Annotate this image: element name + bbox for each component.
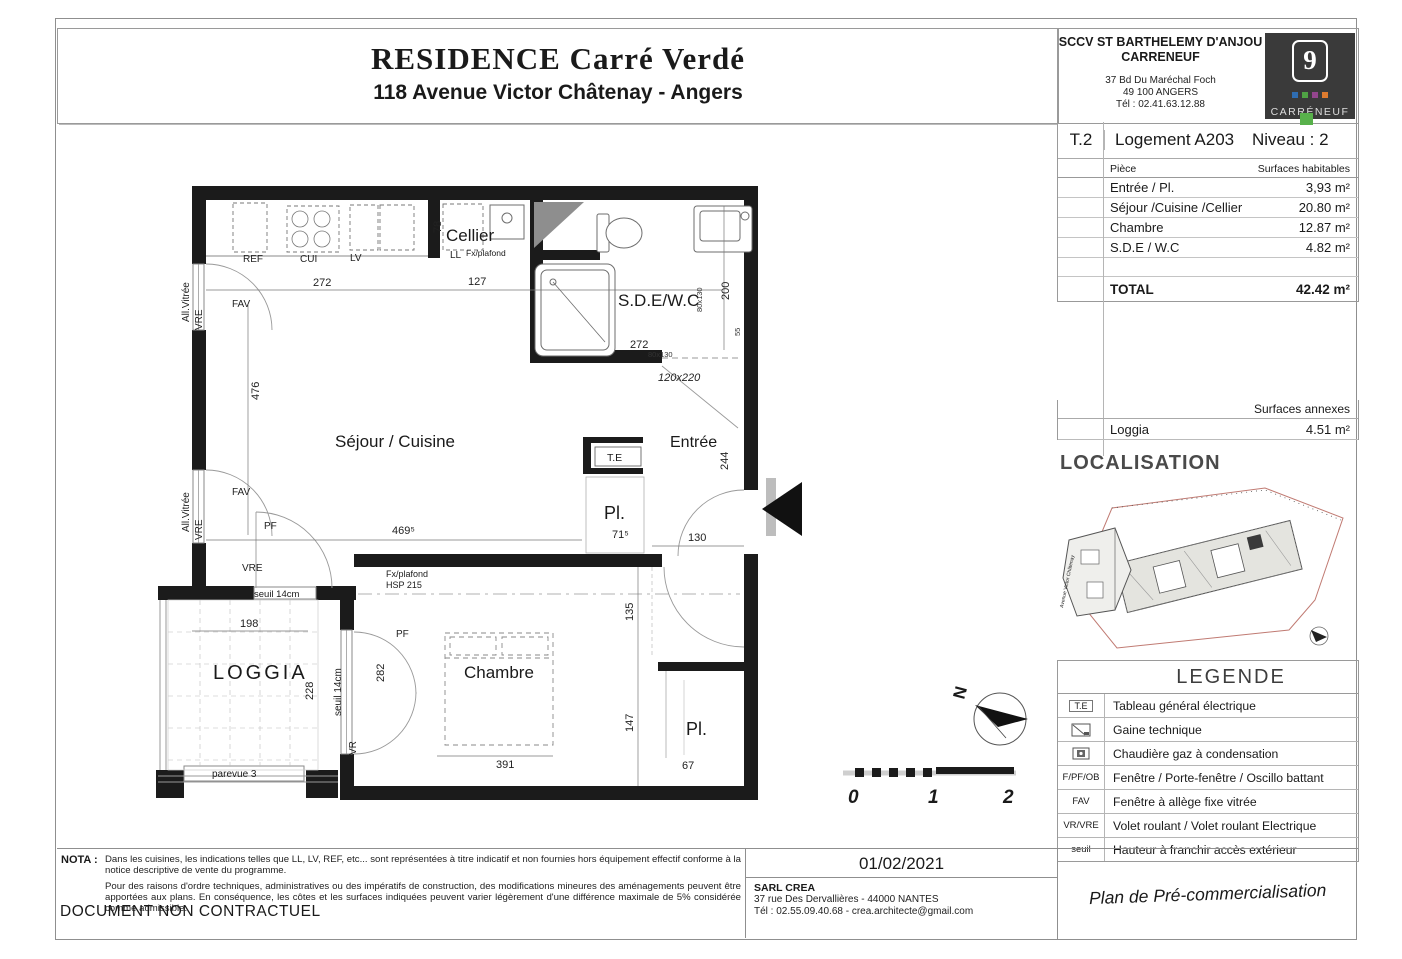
label-fav-2: FAV: [232, 487, 250, 498]
dim-244: 244: [719, 452, 731, 470]
room-area: 3,93 m²: [1306, 180, 1358, 195]
room-label-sejour: Séjour / Cuisine: [335, 432, 455, 451]
label-fav-1: FAV: [232, 299, 250, 310]
plan-sheet: RESIDENCE Carré Verdé 118 Avenue Victor …: [0, 0, 1402, 959]
room-label-pl-chambre: Pl.: [686, 719, 707, 739]
legend-label: Fenêtre à allège fixe vitrée: [1105, 795, 1257, 809]
dim-71: 71⁵: [612, 529, 629, 541]
legend-label: Fenêtre / Porte-fenêtre / Oscillo battan…: [1105, 771, 1324, 785]
scale-bar: 0 1 2: [843, 767, 1016, 808]
entrance-arrow-icon: [762, 478, 802, 536]
dim-147: 147: [624, 714, 636, 732]
developer-name-line2: CARRENEUF: [1058, 50, 1263, 65]
floorplan-drawing: T.E Séjour / Cuisine Cellier S.D.E/W.C E…: [140, 168, 1052, 820]
label-cui: CUI: [300, 254, 317, 265]
annex-area: 4.51 m²: [1306, 422, 1358, 437]
scale-1: 1: [928, 787, 939, 808]
te-symbol: T.E: [1069, 700, 1092, 712]
room-name: S.D.E / W.C: [1058, 240, 1306, 255]
room-area: 12.87 m²: [1299, 220, 1358, 235]
fav-symbol: FAV: [1058, 790, 1105, 813]
gaine-icon: [1058, 718, 1105, 741]
dim-272-sde: 272: [630, 339, 648, 351]
label-pf-2: PF: [396, 629, 409, 640]
architect-address: 37 rue Des Dervallières - 44000 NANTES: [754, 894, 1057, 906]
scale-0: 0: [848, 787, 859, 808]
legend-row: VR/VRE Volet roulant / Volet roulant Ele…: [1058, 814, 1358, 838]
architect-block: SARL CREA 37 rue Des Dervallières - 4400…: [745, 878, 1057, 938]
legend-label: Chaudière gaz à condensation: [1105, 747, 1278, 761]
dim-55: 55: [733, 328, 742, 336]
fpfob-symbol: F/PF/OB: [1058, 766, 1105, 789]
logo-dots-icon: [1265, 85, 1355, 103]
col-surfaces: Surfaces habitables: [1258, 163, 1358, 175]
label-lv: LV: [350, 253, 362, 264]
label-pf-1: PF: [264, 521, 277, 532]
te-label: T.E: [607, 452, 622, 464]
label-hsp215: HSP 215: [386, 580, 422, 590]
legend-row: FAV Fenêtre à allège fixe vitrée: [1058, 790, 1358, 814]
localisation-map: Avenue Victor Châtenay: [1057, 478, 1355, 658]
dim-391: 391: [496, 759, 514, 771]
architect-contact: Tél : 02.55.09.40.68 - crea.architecte@g…: [754, 906, 1057, 918]
legend-heading: LEGENDE: [1058, 661, 1358, 694]
developer-name-line1: SCCV ST BARTHELEMY D'ANJOU: [1058, 35, 1263, 50]
unit-name: Logement A203: [1104, 130, 1252, 150]
table-row: Loggia 4.51 m²: [1058, 419, 1358, 440]
unit-type: T.2: [1058, 130, 1104, 150]
room-name: Chambre: [1058, 220, 1299, 235]
annexes-header: Surfaces annexes: [1058, 400, 1358, 419]
hob-burners: [292, 211, 330, 247]
col-piece: Pièce: [1058, 163, 1258, 175]
label-parevue: parevue 3: [212, 769, 257, 780]
room-label-pl-entree: Pl.: [604, 503, 625, 523]
legend-row: T.E Tableau général électrique: [1058, 694, 1358, 718]
non-contractual-note: DOCUMENT NON CONTRACTUEL: [60, 903, 321, 921]
label-fx-plafond-chambre: Fx/plafond: [386, 569, 428, 579]
legend-label: Gaine technique: [1105, 723, 1202, 737]
label-vr: VR: [348, 741, 359, 755]
annex-room: Loggia: [1058, 422, 1306, 437]
dim-200: 200: [720, 282, 732, 300]
developer-phone: Tél : 02.41.63.12.88: [1058, 99, 1263, 111]
dim-127: 127: [468, 276, 486, 288]
dim-120x220: 120x220: [658, 372, 701, 384]
chaudiere-icon: [1058, 742, 1105, 765]
label-vre-3: VRE: [242, 563, 263, 574]
date-box: 01/02/2021: [745, 848, 1057, 878]
dim-228: 228: [304, 682, 316, 700]
label-fx-plafond-cellier: Fx/plafond: [466, 248, 506, 258]
localisation-heading: LOCALISATION: [1060, 452, 1221, 475]
label-seuil-horizontal: seuil 14cm: [254, 589, 299, 600]
dim-282: 282: [375, 664, 387, 682]
annexes-table: Surfaces annexes Loggia 4.51 m²: [1057, 400, 1359, 440]
total-label: TOTAL: [1058, 282, 1296, 297]
developer-block: SCCV ST BARTHELEMY D'ANJOU CARRENEUF 37 …: [1057, 28, 1359, 124]
dim-272-top: 272: [313, 277, 331, 289]
dim-80x130-a: 80x130: [648, 350, 673, 359]
dim-135: 135: [624, 603, 636, 621]
title-block: RESIDENCE Carré Verdé 118 Avenue Victor …: [57, 28, 1059, 124]
label-ref: REF: [243, 254, 263, 265]
building-main: [1115, 521, 1302, 613]
nota-label: NOTA :: [61, 854, 98, 866]
unit-level: Niveau : 2: [1252, 130, 1358, 150]
compass-n-label: N: [950, 684, 972, 701]
carreneuf-logo: 9 CARRÉNEUF: [1265, 33, 1355, 119]
developer-identity: SCCV ST BARTHELEMY D'ANJOU CARRENEUF 37 …: [1058, 35, 1263, 111]
room-name: Séjour /Cuisine /Cellier: [1058, 200, 1299, 215]
label-all-vitree-1: All.Vitrée: [181, 282, 192, 322]
residence-address: 118 Avenue Victor Châtenay - Angers: [58, 81, 1058, 105]
label-seuil-vertical: seuil 14cm: [333, 668, 344, 716]
dim-78: 78: [432, 221, 444, 233]
legend-label: Volet roulant / Volet roulant Electrique: [1105, 819, 1316, 833]
room-label-chambre: Chambre: [464, 663, 534, 682]
residence-title: RESIDENCE Carré Verdé: [58, 41, 1058, 77]
label-vre-1: VRE: [194, 309, 205, 330]
legend-row: F/PF/OB Fenêtre / Porte-fenêtre / Oscill…: [1058, 766, 1358, 790]
architect-name: SARL CREA: [754, 882, 1057, 894]
dim-80x130-b: 80x130: [695, 287, 704, 312]
dim-67: 67: [682, 760, 694, 772]
nota-paragraph-1: Dans les cuisines, les indications telle…: [105, 854, 741, 876]
bed-outline: [445, 633, 553, 745]
label-ll: LL: [450, 250, 462, 261]
building-secondary: [1063, 528, 1131, 616]
room-label-loggia: LOGGIA: [213, 662, 308, 684]
total-area: 42.42 m²: [1296, 282, 1358, 297]
label-all-vitree-2: All.Vitrée: [181, 492, 192, 532]
developer-address2: 49 100 ANGERS: [1058, 87, 1263, 99]
legend-row: Chaudière gaz à condensation: [1058, 742, 1358, 766]
scale-2: 2: [1002, 787, 1014, 808]
room-name: Entrée / Pl.: [1058, 180, 1306, 195]
label-vre-2: VRE: [194, 519, 205, 540]
plan-title-box: Plan de Pré-commercialisation: [1057, 848, 1358, 939]
logo-nine-icon: 9: [1292, 40, 1328, 82]
legend-table: LEGENDE T.E Tableau général électrique G…: [1057, 660, 1359, 862]
legend-label: Tableau général électrique: [1105, 699, 1256, 713]
fixtures-group: [490, 205, 752, 356]
vrvre-symbol: VR/VRE: [1058, 814, 1105, 837]
developer-address1: 37 Bd Du Maréchal Foch: [1058, 75, 1263, 87]
dim-198: 198: [240, 618, 258, 630]
dim-476: 476: [250, 382, 262, 400]
legend-row: Gaine technique: [1058, 718, 1358, 742]
dim-130: 130: [688, 532, 706, 544]
room-area: 20.80 m²: [1299, 200, 1358, 215]
plan-title: Plan de Pré-commercialisation: [1089, 879, 1327, 908]
nota-block: NOTA : Dans les cuisines, les indication…: [57, 848, 745, 939]
dim-469: 469⁵: [392, 525, 415, 537]
room-area: 4.82 m²: [1306, 240, 1358, 255]
north-compass-icon: N: [950, 684, 1028, 745]
room-label-entree: Entrée: [670, 434, 717, 451]
room-label-cellier: Cellier: [446, 226, 495, 245]
room-label-sde: S.D.E/W.C: [618, 291, 699, 310]
